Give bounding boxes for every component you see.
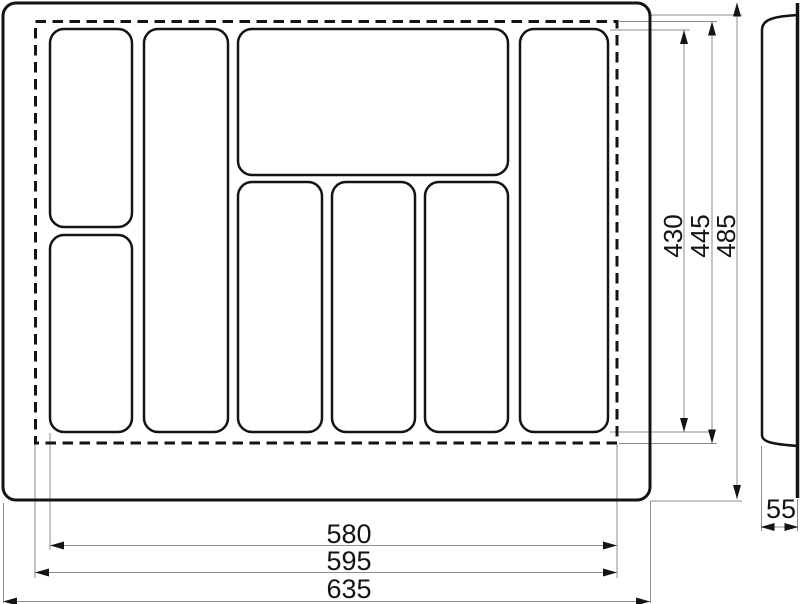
arrow-445-top <box>708 22 716 36</box>
arrow-580-left <box>50 542 64 550</box>
compartment-middle-3 <box>425 182 508 432</box>
cutlery-tray-technical-drawing: 430 445 485 580 595 635 55 <box>0 0 800 604</box>
arrow-635-right <box>636 598 650 604</box>
arrow-635-left <box>3 598 17 604</box>
dim-label-580: 580 <box>326 519 371 549</box>
arrow-55-left <box>761 523 775 531</box>
compartments <box>50 29 608 432</box>
side-profile-view <box>762 3 798 498</box>
drawing-canvas: 430 445 485 580 595 635 55 <box>0 0 800 604</box>
compartment-left-bottom <box>50 235 132 432</box>
compartment-middle-2 <box>332 182 415 432</box>
profile-front-edge <box>762 15 798 446</box>
compartment-wide-top <box>238 29 508 175</box>
compartment-column-2 <box>144 29 228 432</box>
dim-label-55: 55 <box>766 494 796 524</box>
arrow-485-bottom <box>733 485 741 499</box>
compartment-left-top <box>50 29 132 227</box>
dim-label-485: 485 <box>711 214 741 257</box>
dim-label-430: 430 <box>658 214 688 257</box>
arrow-580-right <box>603 542 617 550</box>
compartment-middle-1 <box>238 182 322 432</box>
arrow-55-right <box>785 523 799 531</box>
arrow-595-left <box>35 569 49 577</box>
dim-label-595: 595 <box>326 546 371 576</box>
arrow-485-top <box>733 3 741 17</box>
arrow-595-right <box>603 569 617 577</box>
arrow-445-bottom <box>708 430 716 444</box>
arrow-430-bottom <box>680 418 688 432</box>
compartment-right <box>520 29 608 432</box>
arrow-430-top <box>680 30 688 44</box>
dim-label-635: 635 <box>326 574 371 604</box>
